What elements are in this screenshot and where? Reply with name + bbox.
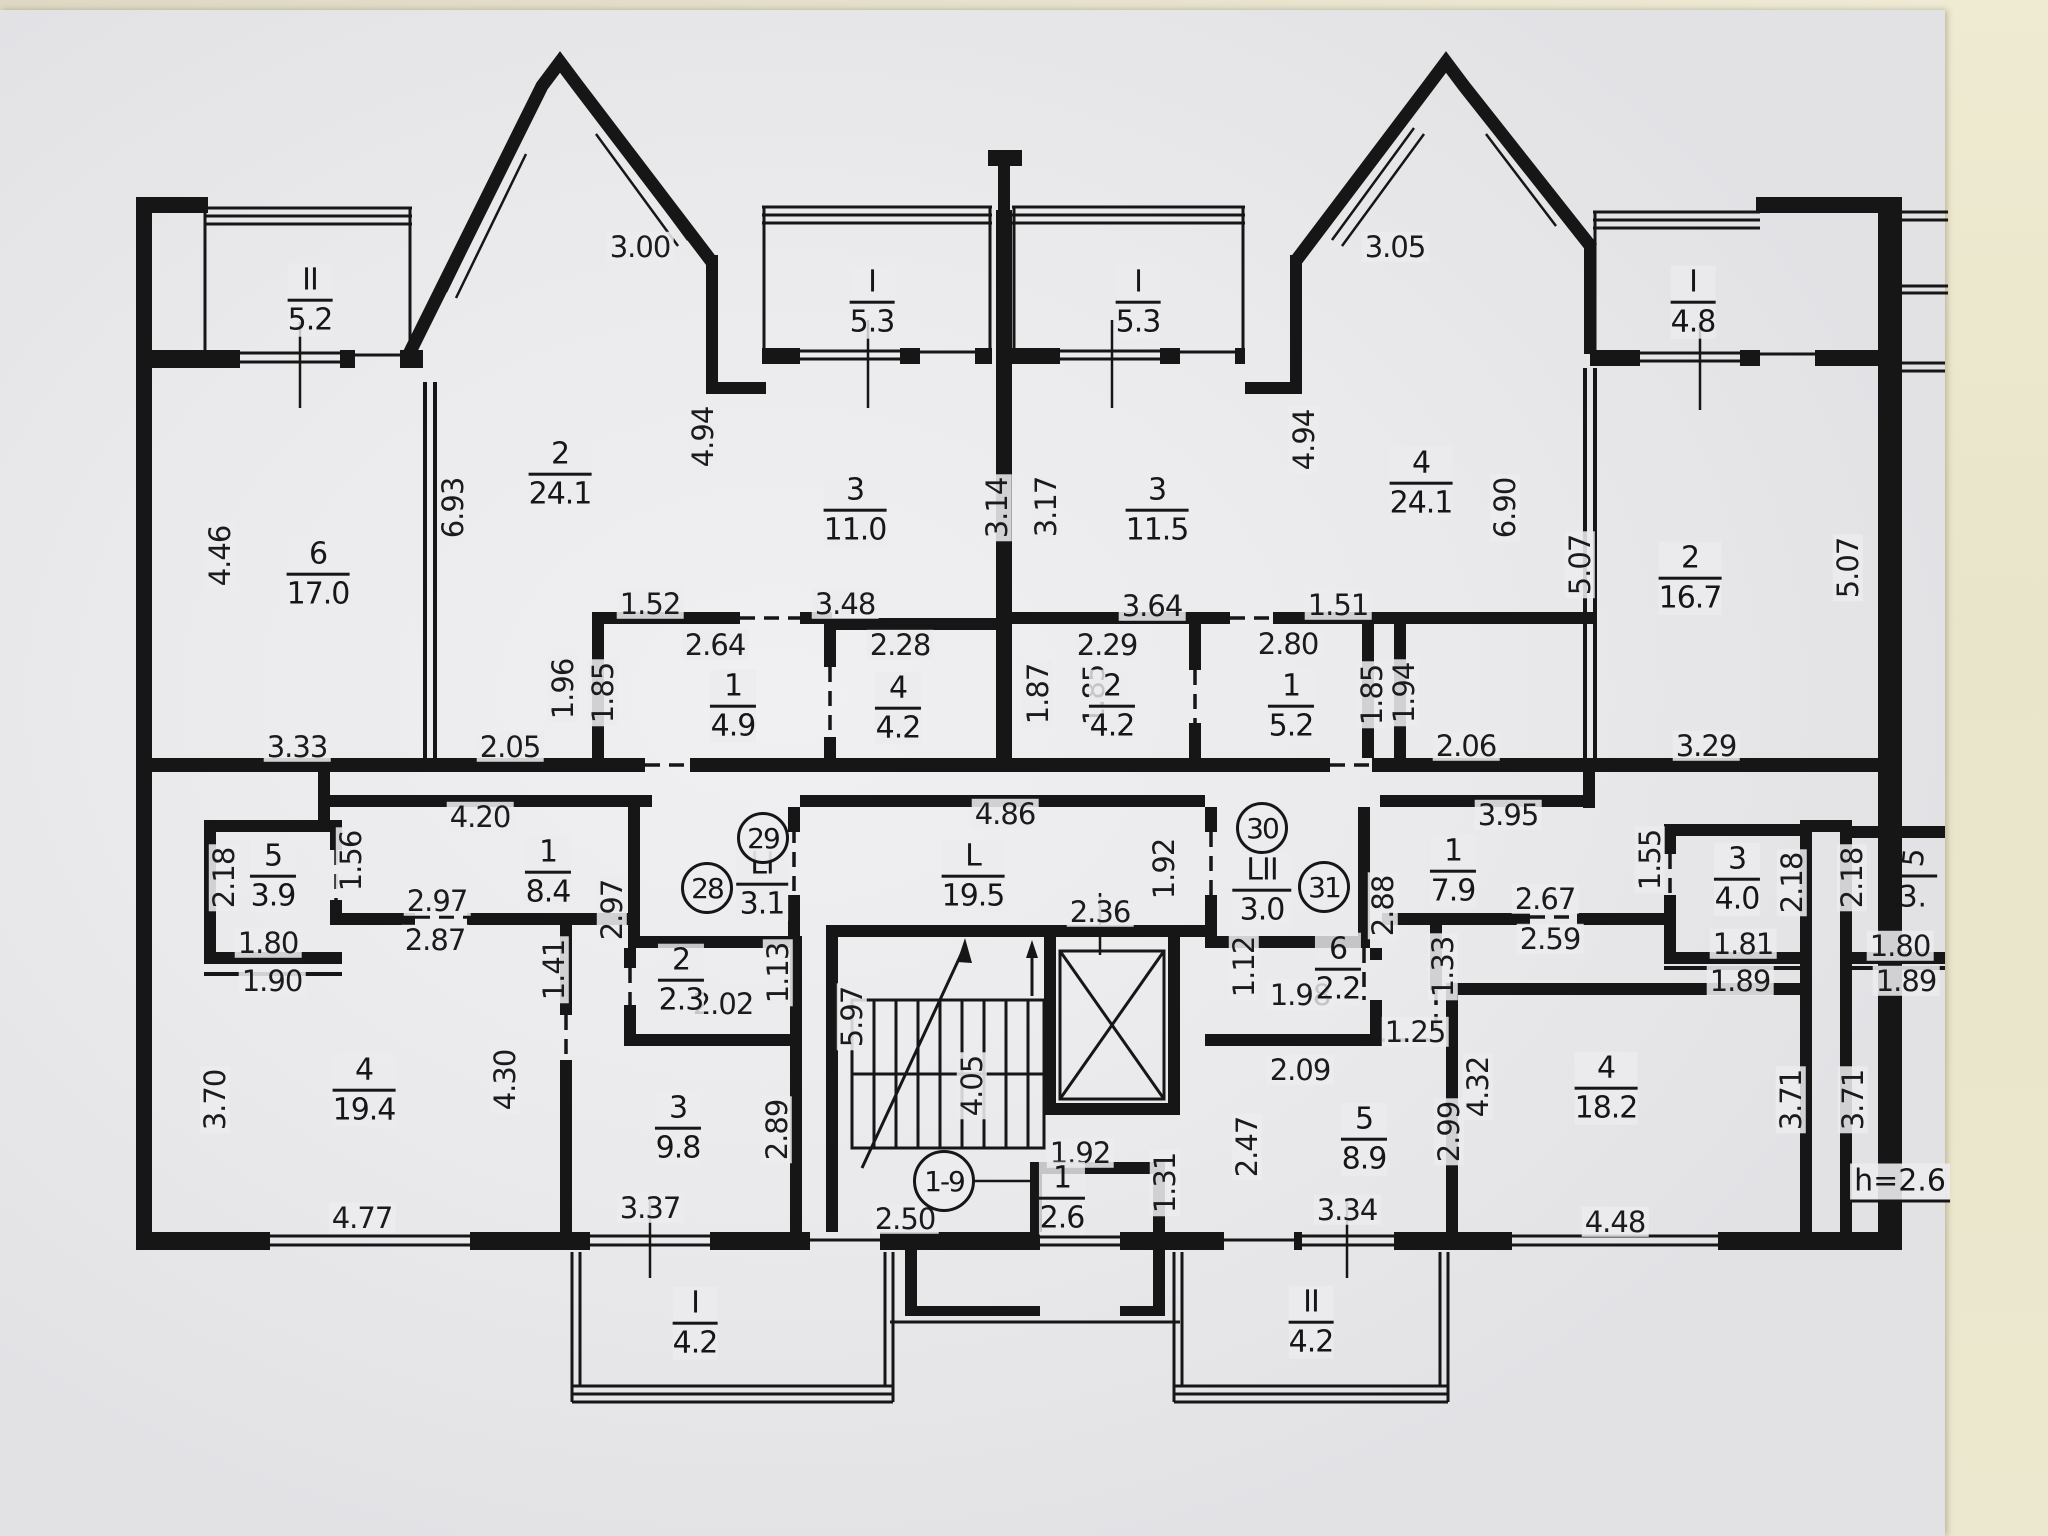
apartment-number-circle: 31: [1298, 861, 1350, 913]
room-area: 16.7: [1659, 579, 1722, 614]
room-area: 17.0: [287, 575, 350, 610]
room-number: I: [673, 1287, 718, 1325]
dimension-label: 5.97: [837, 984, 867, 1051]
room-number: 3: [1126, 474, 1189, 512]
dimension-label: 1.85: [1357, 662, 1387, 729]
room-area: 4.9: [710, 707, 756, 742]
room-label: 418.2: [1575, 1052, 1638, 1125]
dimension-label: 3.33: [264, 732, 331, 762]
room-number: 3: [1714, 843, 1760, 881]
room-number: 4: [1575, 1052, 1638, 1090]
room-area: 5.2: [288, 301, 333, 336]
room-number: 2: [1089, 670, 1135, 708]
room-area: 8.4: [525, 873, 571, 908]
room-label: 12.6: [1039, 1162, 1085, 1235]
dimension-label: 2.18: [209, 845, 239, 912]
room-number: 1: [1039, 1162, 1085, 1200]
room-number: 6: [287, 538, 350, 576]
dimension-label: 4.86: [972, 799, 1039, 829]
room-label-cut: 5 3.: [1889, 841, 1937, 914]
room-area: 11.0: [824, 511, 887, 546]
room-label: I5.3: [1116, 266, 1161, 339]
dimension-label: 1.12: [1229, 934, 1259, 1001]
dimension-label: 2.47: [1232, 1114, 1262, 1181]
dimension-label: 4.77: [329, 1203, 396, 1233]
room-area: 4.2: [673, 1324, 718, 1359]
room-area: 5.2: [1268, 707, 1314, 742]
room-number: 4: [333, 1054, 396, 1092]
room-area: 19.4: [333, 1091, 396, 1126]
dimension-label: 2.59: [1517, 924, 1584, 954]
room-label: 424.1: [1390, 447, 1453, 520]
room-number: 5: [250, 840, 296, 878]
dimension-label: 2.06: [1433, 731, 1500, 761]
room-number: I: [1116, 266, 1161, 304]
room-label: I5.3: [850, 266, 895, 339]
dimension-label: 1.13: [763, 940, 793, 1007]
room-number: 4: [1390, 447, 1453, 485]
dimension-label: 1.92: [1149, 836, 1179, 903]
room-number: 3: [655, 1092, 701, 1130]
room-number: 2: [1659, 542, 1722, 580]
dimension-label: 2.99: [1434, 1099, 1464, 1166]
room-label: 216.7: [1659, 542, 1722, 615]
dimension-label: 3.70: [200, 1067, 230, 1134]
ceiling-height-note: h=2.6: [1850, 1164, 1950, 1203]
room-label: 58.9: [1341, 1103, 1387, 1176]
room-area: 24.1: [1390, 484, 1453, 519]
room-number: L: [942, 840, 1005, 878]
dimension-label: 6.90: [1490, 475, 1520, 542]
dimension-label: 3.05: [1362, 232, 1429, 262]
room-label: 62.2: [1315, 933, 1361, 1006]
room-label: 419.4: [333, 1054, 396, 1127]
room-area: 3.0: [1232, 891, 1291, 926]
apartment-number-circle: 28: [681, 862, 733, 914]
apartment-number-circle: 30: [1236, 802, 1288, 854]
room-area: 7.9: [1430, 872, 1476, 907]
dimension-label: 4.05: [957, 1053, 987, 1120]
room-area: 9.8: [655, 1129, 701, 1164]
dimension-label: 4.46: [205, 523, 235, 590]
dimension-label: 6.93: [438, 475, 468, 542]
apartment-number-circle: 29: [737, 812, 789, 864]
dimension-label: 2.28: [867, 630, 934, 660]
room-area: 19.5: [942, 877, 1005, 912]
room-area: 4.2: [875, 709, 921, 744]
dimension-label: 2.87: [402, 925, 469, 955]
room-number: 5: [1895, 847, 1931, 869]
dimension-label: 2.36: [1067, 897, 1134, 927]
dimension-label: 1.80: [235, 928, 302, 958]
room-area: 4.2: [1089, 707, 1135, 742]
floor-plan-walls: [0, 0, 2048, 1536]
room-area: 4.0: [1714, 880, 1760, 915]
dimension-label: 1.51: [1305, 590, 1372, 620]
room-area: 24.1: [529, 475, 592, 510]
dimension-label: 2.05: [477, 732, 544, 762]
room-label: 18.4: [525, 836, 571, 909]
dimension-label: 5.07: [1833, 535, 1863, 602]
dimension-label: 3.48: [812, 589, 879, 619]
dimension-label: 3.95: [1475, 800, 1542, 830]
dimension-label: 1.25: [1382, 1017, 1449, 1047]
room-area: 11.5: [1126, 511, 1189, 546]
room-area: 3.1: [736, 885, 788, 920]
dimension-label: 1.96: [548, 656, 578, 723]
dimension-label: 1.52: [617, 589, 684, 619]
dimension-label: 2.67: [1512, 884, 1579, 914]
room-number: 5: [1341, 1103, 1387, 1141]
room-label: 311.0: [824, 474, 887, 547]
dimension-label: 3.71: [1776, 1067, 1806, 1134]
dimension-label: 1.89: [1707, 966, 1774, 996]
dimension-label: 4.20: [447, 802, 514, 832]
dimension-label: 4.30: [490, 1047, 520, 1114]
room-label: 53.9: [250, 840, 296, 913]
room-label: I4.2: [673, 1287, 718, 1360]
dimension-label: 4.94: [688, 404, 718, 471]
dimension-label: 3.71: [1838, 1067, 1868, 1134]
dimension-label: 4.48: [1582, 1207, 1649, 1237]
room-number: II: [1289, 1286, 1334, 1324]
dimension-label: 3.14: [982, 475, 1012, 542]
room-number: 6: [1315, 933, 1361, 971]
room-label: 17.9: [1430, 835, 1476, 908]
dimension-label: 3.29: [1673, 731, 1740, 761]
dimension-label: 2.80: [1255, 629, 1322, 659]
room-label: 44.2: [875, 672, 921, 745]
dimension-label: 1.80: [1867, 931, 1934, 961]
room-area: 3.: [1889, 875, 1937, 914]
dimension-label: 3.34: [1314, 1195, 1381, 1225]
room-area: 5.3: [850, 303, 895, 338]
room-area: 2.6: [1039, 1199, 1085, 1234]
room-area: 2.3: [658, 981, 704, 1016]
dimension-label: 1.89: [1873, 966, 1940, 996]
room-number: 1: [1268, 670, 1314, 708]
room-number: I: [850, 266, 895, 304]
dimension-label: 2.97: [404, 886, 471, 916]
dimension-label: 5.07: [1565, 532, 1595, 599]
room-number: I: [1671, 266, 1716, 304]
apartment-number-circle: 1-9: [913, 1150, 975, 1212]
room-number: 2: [529, 438, 592, 476]
room-label: 39.8: [655, 1092, 701, 1165]
dimension-label: 3.17: [1031, 474, 1061, 541]
dimension-label: 1.56: [336, 828, 366, 895]
room-label: 14.9: [710, 670, 756, 743]
room-label: 34.0: [1714, 843, 1760, 916]
room-number: 4: [875, 672, 921, 710]
room-number: 3: [824, 474, 887, 512]
room-number: 1: [1430, 835, 1476, 873]
room-number: 1: [710, 670, 756, 708]
room-label: I4.8: [1671, 266, 1716, 339]
room-area: 2.2: [1315, 970, 1361, 1005]
dimension-label: 2.29: [1074, 630, 1141, 660]
dimension-label: 2.18: [1777, 850, 1807, 917]
dimension-label: 1.85: [588, 660, 618, 727]
room-label: 22.3: [658, 944, 704, 1017]
dimension-label: 1.55: [1635, 827, 1665, 894]
room-number: 1: [525, 836, 571, 874]
dimension-label: 1.41: [539, 937, 569, 1004]
room-number: 2: [658, 944, 704, 982]
dimension-label: 3.00: [607, 232, 674, 262]
dimension-label: 4.94: [1289, 407, 1319, 474]
dimension-label: 2.64: [682, 630, 749, 660]
room-area: 3.9: [250, 877, 296, 912]
dimension-label: 2.97: [597, 877, 627, 944]
room-area: 18.2: [1575, 1089, 1638, 1124]
room-label: LII3.0: [1232, 854, 1291, 927]
dimension-label: 1.31: [1150, 1150, 1180, 1217]
room-area: 8.9: [1341, 1140, 1387, 1175]
room-number: II: [288, 264, 333, 302]
room-label: II4.2: [1289, 1286, 1334, 1359]
room-label: L19.5: [942, 840, 1005, 913]
dimension-label: 2.18: [1837, 845, 1867, 912]
room-area: 4.2: [1289, 1323, 1334, 1358]
dimension-label: 3.64: [1119, 591, 1186, 621]
room-label: 15.2: [1268, 670, 1314, 743]
dimension-label: 2.88: [1368, 873, 1398, 940]
dimension-label: 1.81: [1710, 929, 1777, 959]
room-number: LII: [1232, 854, 1291, 892]
room-label: 224.1: [529, 438, 592, 511]
dimension-label: 1.90: [239, 966, 306, 996]
dimension-label: 2.09: [1267, 1055, 1334, 1085]
room-label: 617.0: [287, 538, 350, 611]
dimension-label: 2.50: [872, 1204, 939, 1234]
dimension-label: 1.33: [1428, 934, 1458, 1001]
dimension-label: 4.32: [1463, 1054, 1493, 1121]
room-area: 5.3: [1116, 303, 1161, 338]
room-label: 24.2: [1089, 670, 1135, 743]
dimension-label: 1.94: [1389, 660, 1419, 727]
room-area: 4.8: [1671, 303, 1716, 338]
dimension-label: 1.87: [1023, 661, 1053, 728]
dimension-label: 2.89: [762, 1097, 792, 1164]
room-label: 311.5: [1126, 474, 1189, 547]
room-label: II5.2: [288, 264, 333, 337]
screenshot-stage: 3.003.054.466.934.943.143.174.946.905.07…: [0, 0, 2048, 1536]
dimension-label: 3.37: [617, 1193, 684, 1223]
